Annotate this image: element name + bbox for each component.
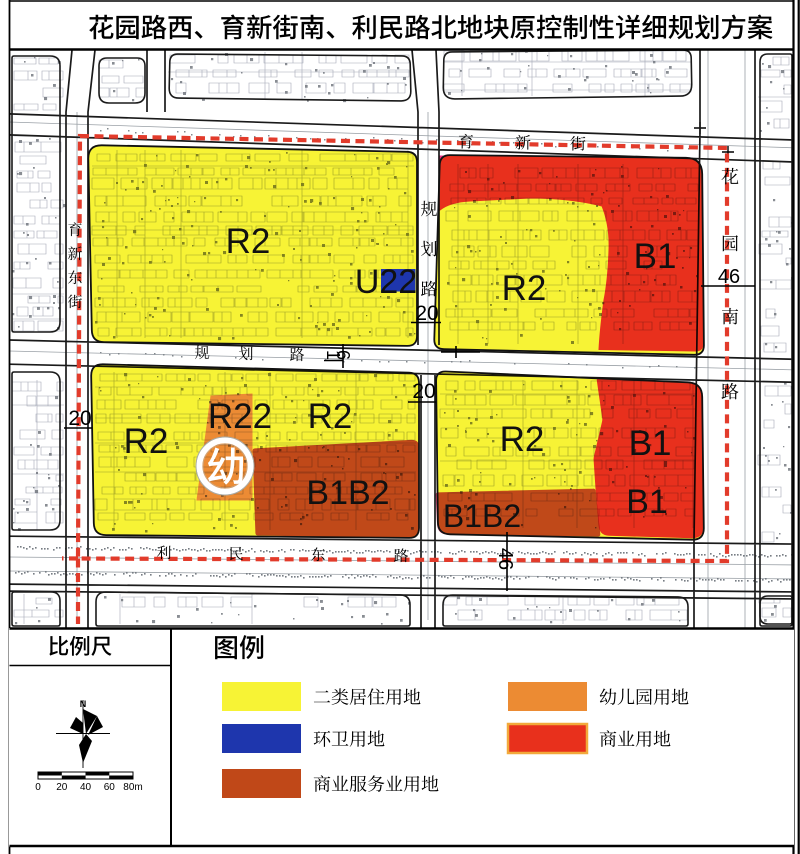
svg-text:46: 46 [718, 266, 740, 288]
svg-text:R2: R2 [502, 269, 547, 308]
svg-text:60: 60 [104, 782, 116, 793]
svg-text:R22: R22 [208, 397, 272, 436]
svg-text:R2: R2 [226, 222, 271, 261]
svg-text:R2: R2 [500, 420, 545, 459]
svg-text:B1: B1 [634, 237, 677, 276]
svg-text:40: 40 [80, 782, 92, 793]
svg-text:46: 46 [494, 548, 516, 570]
svg-text:U22: U22 [355, 263, 417, 301]
svg-text:R2: R2 [124, 422, 169, 461]
svg-text:0: 0 [35, 782, 41, 793]
svg-text:R2: R2 [308, 397, 353, 436]
svg-text:20: 20 [415, 302, 438, 325]
svg-text:N: N [80, 699, 87, 709]
svg-text:B1: B1 [629, 424, 672, 463]
svg-text:20: 20 [68, 407, 91, 430]
svg-text:B1B2: B1B2 [306, 474, 389, 512]
svg-text:20: 20 [56, 782, 68, 793]
svg-text:B1: B1 [626, 483, 668, 521]
svg-text:80m: 80m [123, 782, 142, 793]
svg-text:20: 20 [412, 380, 435, 403]
svg-text:B1B2: B1B2 [443, 498, 521, 534]
